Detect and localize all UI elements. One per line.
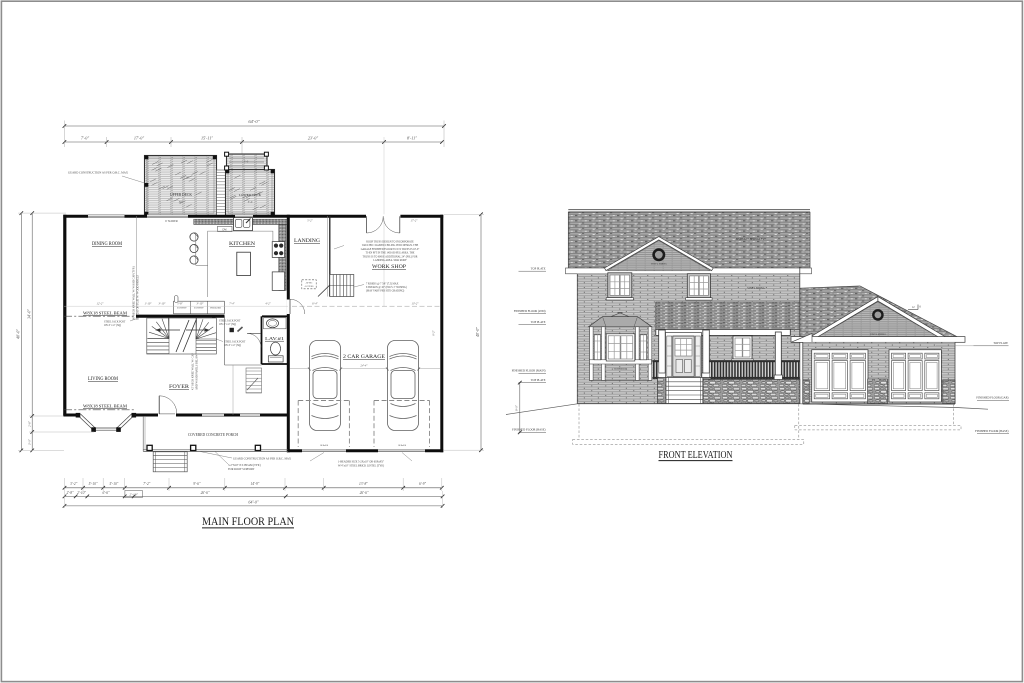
svg-text:GUARD CONSTRUCTION AS PER O.B.: GUARD CONSTRUCTION AS PER O.B.C. MAX	[68, 171, 129, 175]
svg-text:13'-2": 13'-2"	[412, 303, 420, 306]
svg-text:ASPHALT SHINGLES: ASPHALT SHINGLES	[736, 237, 765, 241]
svg-text:FINISHED FLOOR (MAIN): FINISHED FLOOR (MAIN)	[512, 369, 546, 373]
svg-text:6'-4": 6'-4"	[312, 303, 318, 306]
svg-text:36" HIGH KNEE WALL W/ WOOD CAP: 36" HIGH KNEE WALL W/ WOOD CAP (TYP.)	[133, 266, 136, 320]
svg-text:FINISHED FLOOR (GAR): FINISHED FLOOR (GAR)	[976, 396, 1008, 400]
svg-text:FINISHED FLOOR (BASE): FINISHED FLOOR (BASE)	[975, 429, 1008, 433]
svg-text:3-2"X10" P.T. BEAM (TYP.): 3-2"X10" P.T. BEAM (TYP.)	[228, 464, 261, 467]
svg-text:TRUSS IS TO HAVE ADDITIONAL 24: TRUSS IS TO HAVE ADDITIONAL 24" (PSL) FO…	[363, 255, 418, 258]
svg-text:15'-11": 15'-11"	[201, 135, 213, 140]
svg-text:LOWER DECK: LOWER DECK	[239, 193, 262, 197]
svg-text:36": 36"	[179, 200, 184, 204]
svg-text:6' SLIDER: 6' SLIDER	[165, 220, 178, 223]
svg-text:VAULTED / RAISED CEILING INTO: VAULTED / RAISED CEILING INTO DESIGN. TH…	[362, 244, 419, 247]
svg-text:W8X18 STEEL BEAM: W8X18 STEEL BEAM	[83, 311, 128, 315]
svg-text:2'-8": 2'-8"	[66, 491, 74, 495]
svg-text:8'-11": 8'-11"	[407, 135, 417, 140]
svg-text:FRONT ELEVATION: FRONT ELEVATION	[659, 450, 733, 461]
svg-text:9'-6": 9'-6"	[193, 482, 201, 486]
svg-text:9'-2": 9'-2"	[433, 329, 436, 335]
svg-text:GUARD CONSTRUCTION AS PER O.B.: GUARD CONSTRUCTION AS PER O.B.C. MAX	[233, 457, 291, 460]
svg-text:34'-0": 34'-0"	[26, 309, 31, 319]
svg-text:3'-0: 3'-0	[248, 200, 253, 204]
svg-text:FINISHED FLOOR (2ND): FINISHED FLOOR (2ND)	[514, 309, 546, 313]
svg-text:3'-10": 3'-10"	[197, 303, 205, 306]
svg-text:(MAY VARY PER SITE GRADING): (MAY VARY PER SITE GRADING)	[366, 290, 404, 293]
svg-text:26'-6": 26'-6"	[360, 491, 369, 495]
svg-text:23'-0": 23'-0"	[308, 135, 319, 140]
svg-text:COVERED CONCRETE PORCH: COVERED CONCRETE PORCH	[188, 433, 238, 437]
svg-text:64'-0": 64'-0"	[248, 499, 259, 504]
svg-text:PANTRY: PANTRY	[177, 307, 187, 310]
svg-text:FOR ROOF SUPPORT: FOR ROOF SUPPORT	[228, 468, 255, 471]
svg-text:UPPER DECK: UPPER DECK	[170, 193, 192, 197]
svg-text:2'-8": 2'-8"	[27, 420, 31, 427]
svg-text:TOP PLATE: TOP PLATE	[531, 378, 546, 382]
svg-text:24'-4": 24'-4"	[361, 365, 369, 368]
svg-text:5'-0: 5'-0	[244, 160, 249, 164]
svg-text:LAV.#1: LAV.#1	[265, 336, 284, 341]
svg-text:4'-2": 4'-2"	[265, 303, 271, 306]
svg-text:64'-0": 64'-0"	[248, 119, 259, 124]
svg-text:VINYL SIDING: VINYL SIDING	[870, 333, 886, 336]
svg-text:7'-2": 7'-2"	[143, 482, 151, 486]
svg-text:3'-0": 3'-0"	[27, 438, 31, 445]
svg-text:2'-10": 2'-10"	[77, 491, 86, 495]
svg-text:12'-2": 12'-2"	[97, 303, 105, 306]
svg-text:PANTRY: PANTRY	[194, 307, 204, 310]
svg-text:5'-10": 5'-10"	[109, 482, 118, 486]
svg-text:TEMPERED: TEMPERED	[614, 368, 627, 371]
svg-text:FINISHED FLOOR (BASE): FINISHED FLOOR (BASE)	[512, 428, 545, 432]
svg-text:W/4"x10" STEEL BRICK LINTEL (T: W/4"x10" STEEL BRICK LINTEL (TYP.)	[338, 464, 384, 467]
svg-text:2'-10": 2'-10"	[130, 492, 139, 496]
svg-text:9'-0": 9'-0"	[515, 404, 519, 411]
svg-text:7'-4": 7'-4"	[229, 303, 235, 306]
svg-text:ON 4" x 4" (SQ): ON 4" x 4" (SQ)	[104, 324, 121, 327]
svg-text:FREEZER: FREEZER	[210, 307, 221, 310]
svg-text:ROOF TRUSS DESIGN TO INCORPORA: ROOF TRUSS DESIGN TO INCORPORATE	[366, 241, 414, 244]
svg-text:6'-9": 6'-9"	[419, 482, 427, 486]
svg-text:VINYL SIDING: VINYL SIDING	[747, 287, 765, 290]
svg-text:13'-8": 13'-8"	[359, 482, 368, 486]
svg-text:10/8x8/0: 10/8x8/0	[320, 445, 329, 447]
svg-text:40'-0": 40'-0"	[475, 327, 480, 337]
svg-text:1'-10": 1'-10"	[145, 303, 153, 306]
svg-text:17'-0": 17'-0"	[134, 135, 145, 140]
svg-text:ACCESS: ACCESS	[304, 285, 314, 288]
svg-text:TI-EN 9FT IN THE 14D 630 FEG A: TI-EN 9FT IN THE 14D 630 FEG AREA. THE	[366, 252, 415, 255]
svg-text:ON 4" x 4" (SQ): ON 4" x 4" (SQ)	[224, 344, 241, 347]
svg-text:THE 2x6 ON FLAT W/ WOOD PANELS: THE 2x6 ON FLAT W/ WOOD PANELS	[136, 275, 139, 320]
svg-text:26'-6": 26'-6"	[201, 491, 210, 495]
svg-text:MAIN FLOOR PLAN: MAIN FLOOR PLAN	[202, 516, 295, 528]
svg-text:AND WOOD PANELS BELOW: AND WOOD PANELS BELOW	[195, 354, 198, 390]
svg-text:GARAGE FINISHED FLOOR TO U/S T: GARAGE FINISHED FLOOR TO U/S TRUSS IS 10…	[361, 248, 420, 251]
svg-text:10/8x8/0: 10/8x8/0	[398, 445, 407, 447]
svg-text:LANDING AREA. 9D42 ROOF: LANDING AREA. 9D42 ROOF	[373, 259, 407, 262]
svg-text:3'-2": 3'-2"	[70, 482, 78, 486]
svg-text:ON 4" x 4" (SQ): ON 4" x 4" (SQ)	[219, 323, 236, 326]
svg-text:5'-10": 5'-10"	[89, 482, 98, 486]
svg-text:TOP PLATE: TOP PLATE	[531, 267, 546, 271]
svg-text:TOP PLATE: TOP PLATE	[993, 341, 1008, 345]
svg-text:W8X18 STEEL BEAM: W8X18 STEEL BEAM	[83, 405, 128, 409]
svg-text:40'-0": 40'-0"	[16, 329, 21, 339]
svg-text:17'-2": 17'-2"	[411, 220, 419, 223]
svg-text:3'-10": 3'-10"	[159, 303, 167, 306]
svg-text:7'-0": 7'-0"	[81, 135, 89, 140]
svg-text:VINYL SIDING: VINYL SIDING	[651, 263, 667, 266]
svg-text:6'-6": 6'-6"	[102, 491, 110, 495]
svg-text:TOP PLATE: TOP PLATE	[531, 320, 546, 324]
svg-text:5'-2": 5'-2"	[307, 220, 313, 223]
svg-text:42" HIGH KNEE WALL W/ CAP: 42" HIGH KNEE WALL W/ CAP	[192, 353, 195, 390]
svg-text:14'-9": 14'-9"	[250, 482, 259, 486]
svg-text:5'-8": 5'-8"	[177, 303, 183, 306]
svg-text:1-HEADER SIZE 5-2Xx10" OR 60Xx: 1-HEADER SIZE 5-2Xx10" OR 60Xx9X"	[338, 461, 384, 464]
